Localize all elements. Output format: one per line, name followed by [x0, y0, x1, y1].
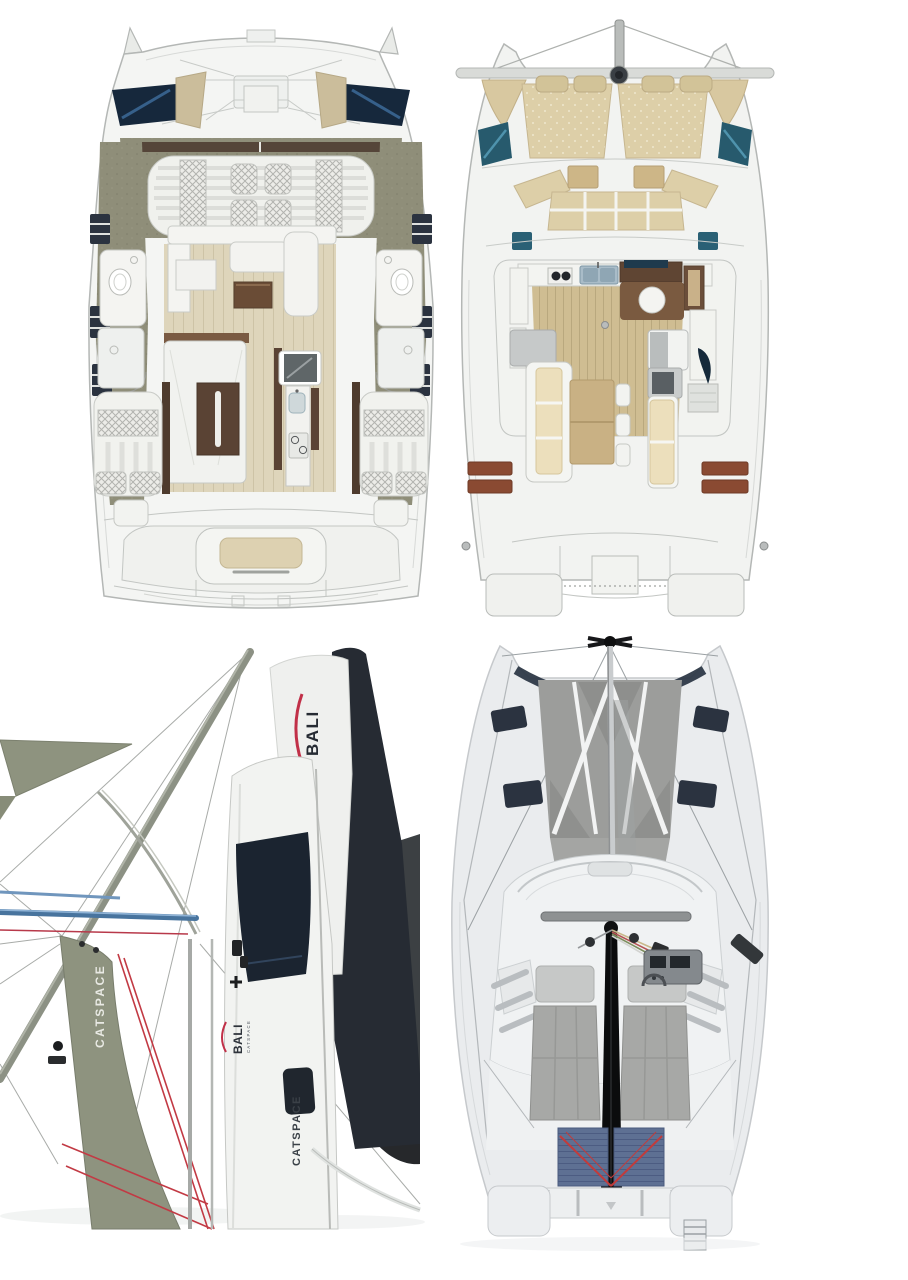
catamaran-views-sheet: BALI BALI CATSPACE CATSPACE CATSPACE	[0, 0, 908, 1280]
hull-side-label-text: CATSPACE	[291, 1095, 303, 1166]
mainsail-logo-text: BALI	[303, 710, 322, 756]
hull-logo-model-text: CATSPACE	[246, 1020, 251, 1053]
hull-and-cabin-floorplan	[84, 20, 438, 614]
hull-logo-brand-text: BALI	[231, 1024, 245, 1054]
jib-label-text: CATSPACE	[93, 964, 107, 1048]
center-cabinet	[164, 333, 249, 483]
main-deck-floorplan	[452, 18, 778, 622]
sailplan-profile-render: BALI BALI CATSPACE CATSPACE CATSPACE	[0, 644, 430, 1236]
saloon-lounge-area	[120, 138, 402, 238]
top-down-deck-render	[438, 630, 808, 1252]
